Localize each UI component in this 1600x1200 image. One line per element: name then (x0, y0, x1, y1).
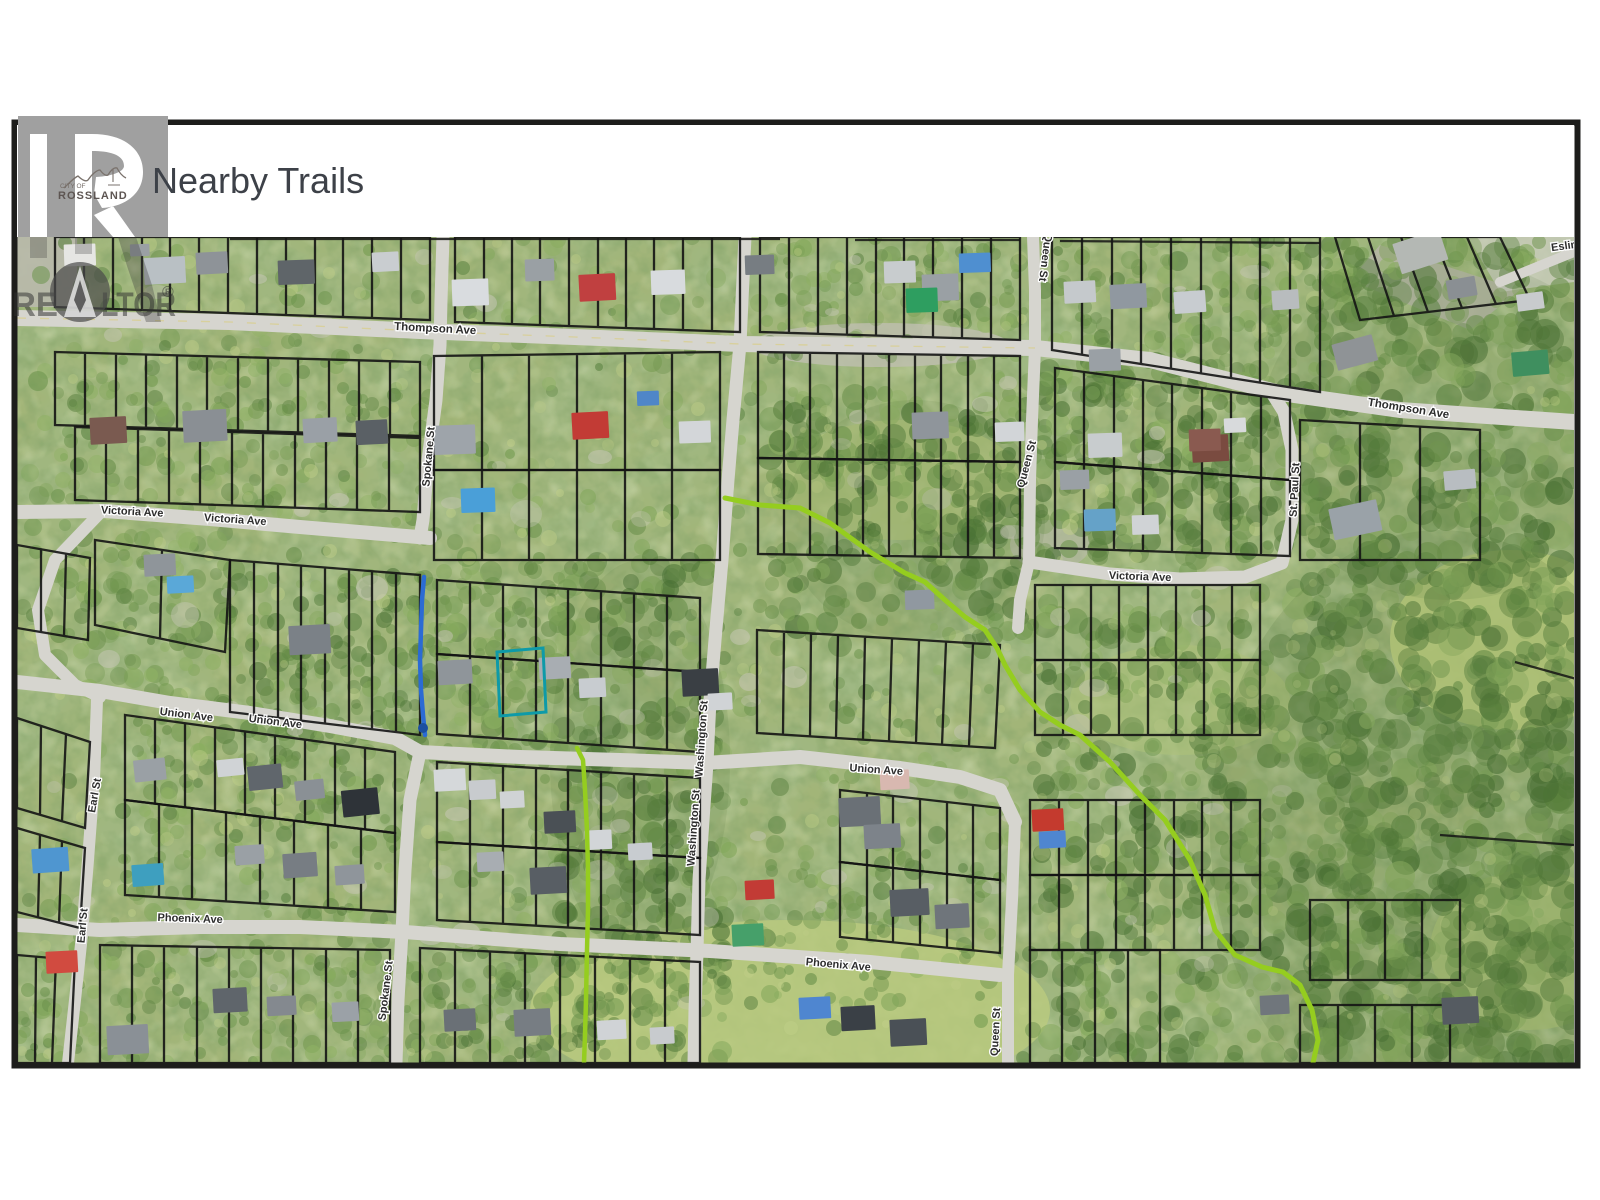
svg-text:Nearby Trails: Nearby Trails (152, 160, 364, 201)
svg-text:®: ® (162, 284, 174, 301)
svg-text:Queen St: Queen St (989, 1007, 1004, 1056)
svg-text:Phoenix Ave: Phoenix Ave (157, 912, 223, 926)
svg-text:Victoria Ave: Victoria Ave (1109, 570, 1172, 584)
svg-text:ROSSLAND: ROSSLAND (58, 190, 128, 202)
svg-text:CITY OF: CITY OF (60, 183, 86, 190)
